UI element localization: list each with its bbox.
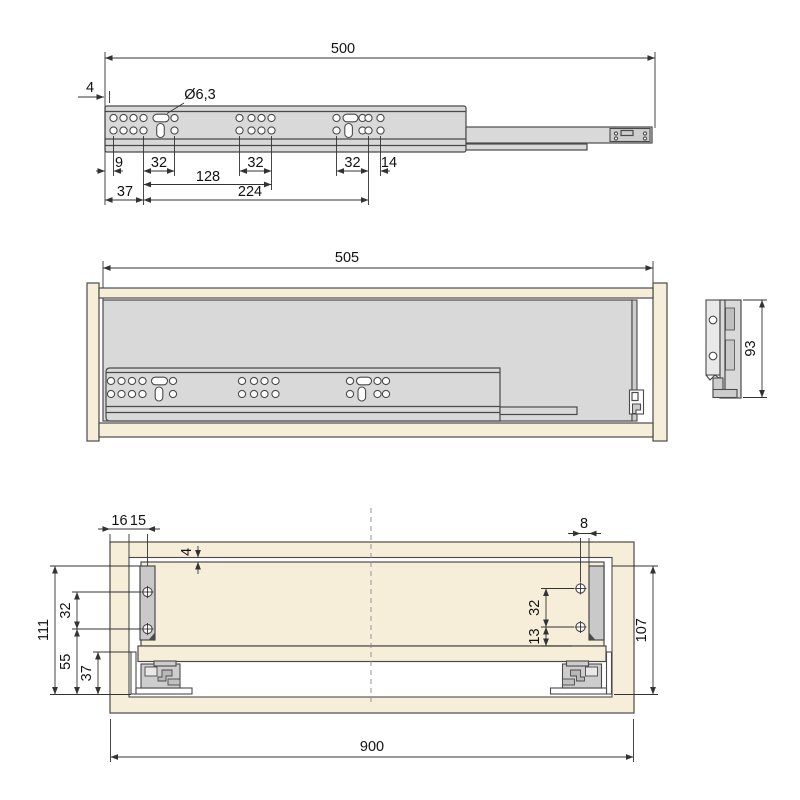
technical-drawing-page: 500 4 Ø6,3 9 32 32 32 14 128 37 [0,0,800,800]
side-profile-view: 93 [706,300,767,398]
dim-16: 16 [111,513,127,529]
dim-side-height: 93 [743,340,759,356]
dim-hole-diameter: Ø6,3 [184,87,215,103]
dim-front-offset: 4 [86,80,94,96]
rail-extension [500,407,577,415]
dim-32-b: 32 [247,155,263,171]
dim-32-c: 32 [344,155,360,171]
dim-total-length: 500 [331,41,355,57]
dim-left-32: 32 [58,602,74,618]
dim-55: 55 [58,654,74,670]
cabinet-back-edge [653,283,667,441]
dim-cabinet-width: 900 [360,739,384,755]
rear-hook-bracket [630,390,644,414]
profile-back-plate [706,300,720,375]
drawer-slide-technical-drawing: 500 4 Ø6,3 9 32 32 32 14 128 37 [0,0,800,800]
middle-view-assembly: 505 [87,250,667,441]
cabinet-top-panel [99,288,653,298]
cabinet-bottom-panel [99,423,653,437]
middle-rail-member [466,144,587,150]
dim-gap-4: 4 [179,548,195,556]
dim-14: 14 [381,155,397,171]
dim-224: 224 [238,184,262,200]
dim-107: 107 [634,618,650,642]
dim-installed-length: 505 [335,250,359,266]
dim-111: 111 [36,619,52,641]
dim-128: 128 [196,169,220,185]
dim-13: 13 [527,628,543,644]
dim-15: 15 [130,513,146,529]
drawer-bottom-panel [138,646,606,662]
dim-32-a: 32 [151,155,167,171]
cabinet-front-edge [87,283,99,441]
rear-mount-bracket [610,129,650,142]
dim-9: 9 [115,155,123,171]
dim-37-bottom: 37 [79,665,95,681]
top-view-rail: 500 4 Ø6,3 9 32 32 32 14 128 37 [78,41,655,205]
bottom-view-section: 16 15 4 111 32 55 37 32 13 8 [36,508,658,762]
dim-8: 8 [580,516,588,532]
dim-right-32: 32 [527,600,543,616]
dim-37-top: 37 [117,184,133,200]
left-back-bracket [140,566,155,640]
